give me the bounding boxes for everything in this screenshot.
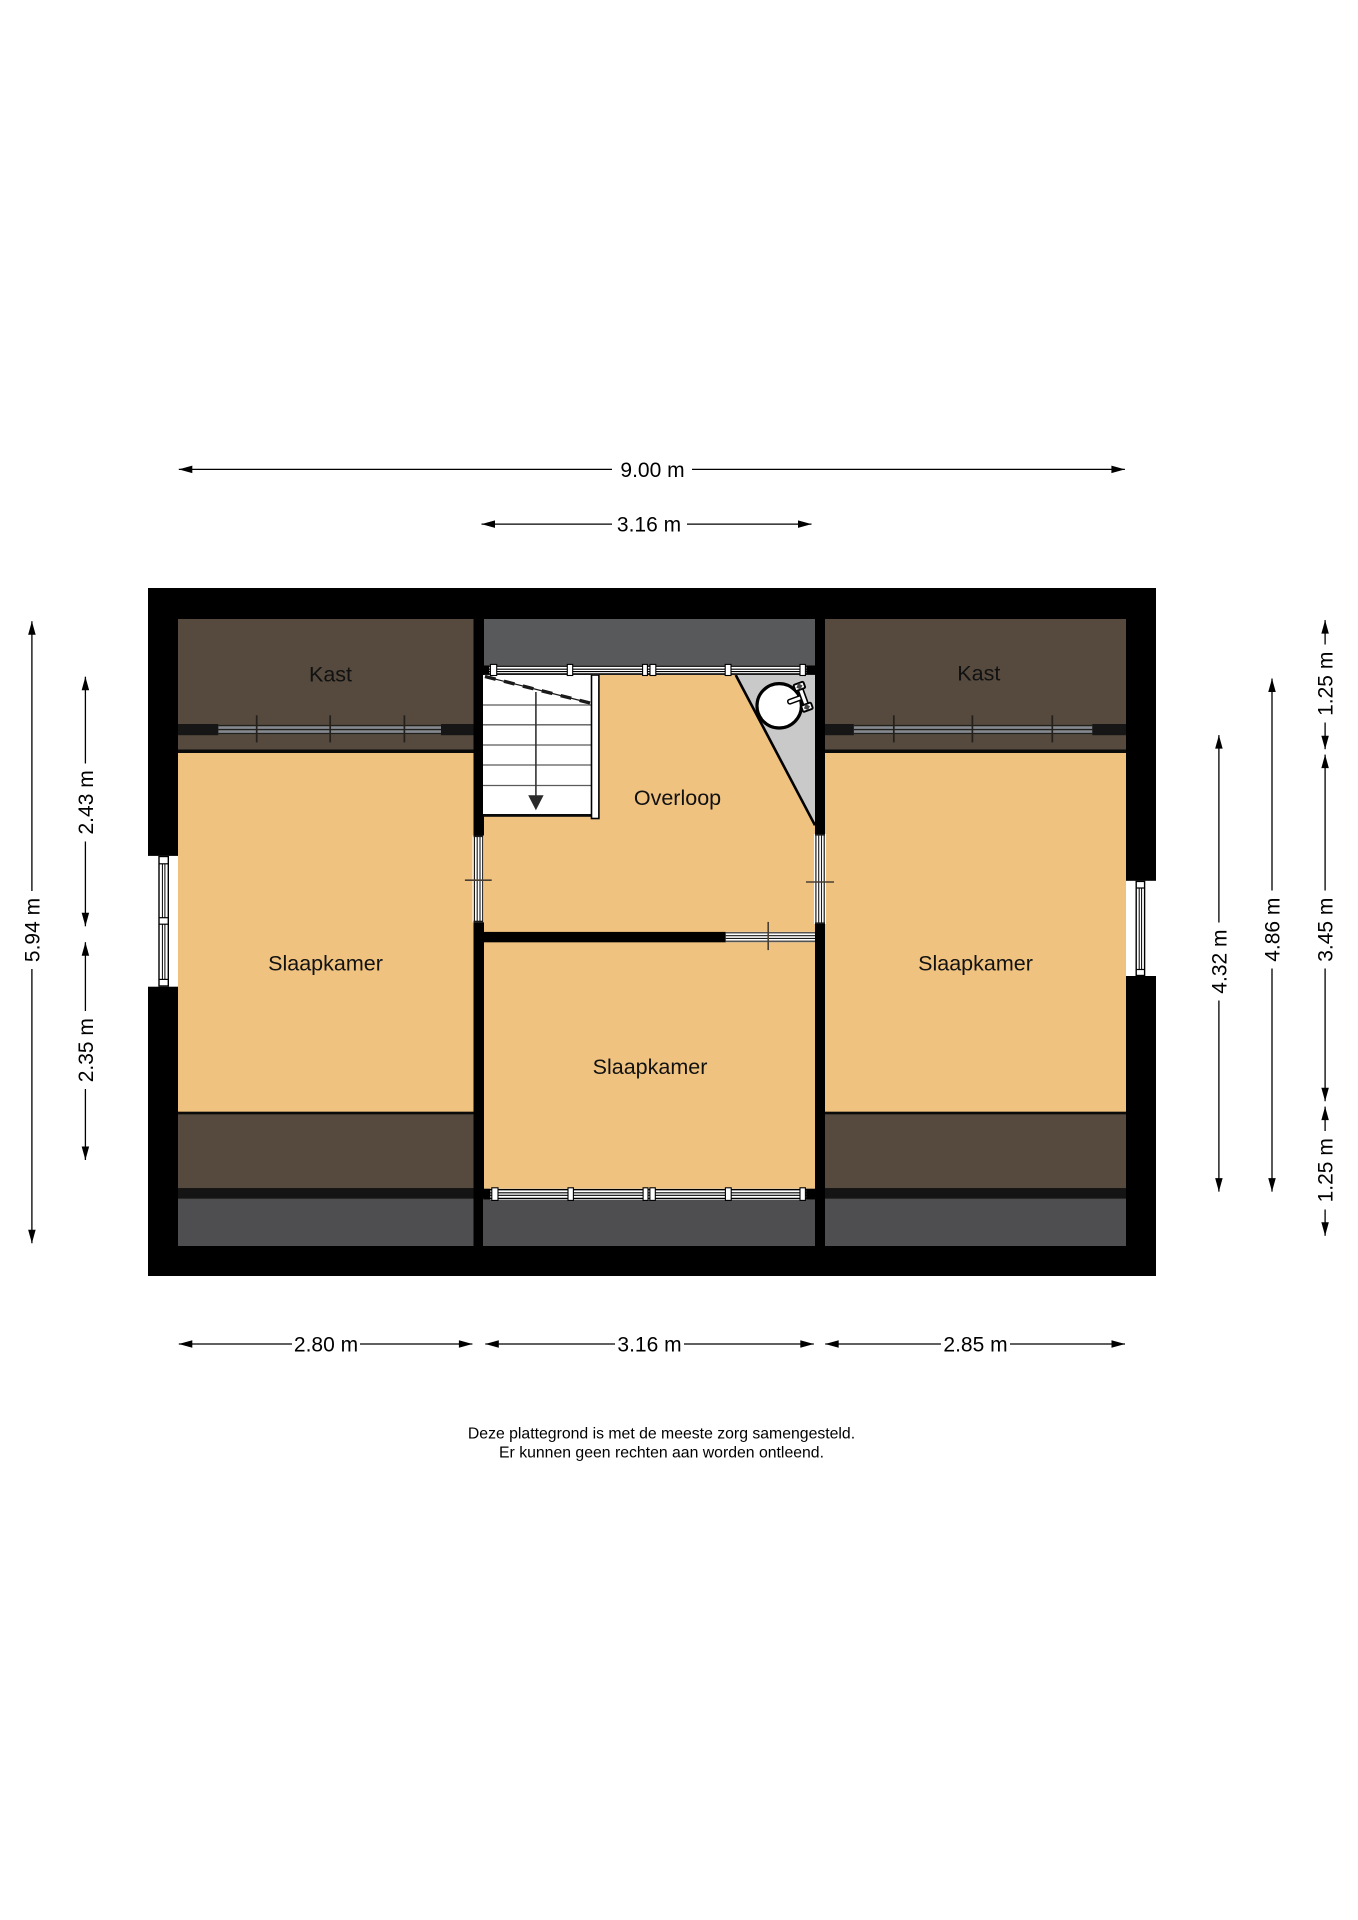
svg-text:2.43 m: 2.43 m bbox=[75, 770, 98, 834]
svg-text:3.16 m: 3.16 m bbox=[617, 1334, 681, 1357]
svg-text:Kast: Kast bbox=[309, 663, 352, 687]
svg-text:Overloop: Overloop bbox=[634, 786, 721, 810]
svg-text:2.80 m: 2.80 m bbox=[294, 1334, 358, 1357]
svg-text:Slaapkamer: Slaapkamer bbox=[268, 951, 383, 975]
svg-text:Deze plattegrond is met de mee: Deze plattegrond is met de meeste zorg s… bbox=[468, 1426, 855, 1443]
svg-text:1.25 m: 1.25 m bbox=[1315, 1138, 1338, 1202]
svg-text:5.94 m: 5.94 m bbox=[21, 898, 44, 962]
svg-text:Slaapkamer: Slaapkamer bbox=[918, 951, 1033, 975]
svg-text:4.32 m: 4.32 m bbox=[1208, 929, 1231, 993]
svg-text:3.16 m: 3.16 m bbox=[617, 514, 681, 537]
svg-text:2.85 m: 2.85 m bbox=[943, 1334, 1007, 1357]
svg-text:2.35 m: 2.35 m bbox=[75, 1018, 98, 1082]
svg-text:3.45 m: 3.45 m bbox=[1315, 898, 1338, 962]
svg-text:4.86 m: 4.86 m bbox=[1262, 898, 1285, 962]
svg-text:Kast: Kast bbox=[957, 662, 1000, 686]
svg-text:9.00 m: 9.00 m bbox=[620, 459, 684, 482]
svg-text:Er kunnen geen rechten aan wor: Er kunnen geen rechten aan worden ontlee… bbox=[499, 1444, 824, 1461]
svg-text:Slaapkamer: Slaapkamer bbox=[593, 1055, 708, 1079]
svg-text:1.25 m: 1.25 m bbox=[1315, 652, 1338, 716]
